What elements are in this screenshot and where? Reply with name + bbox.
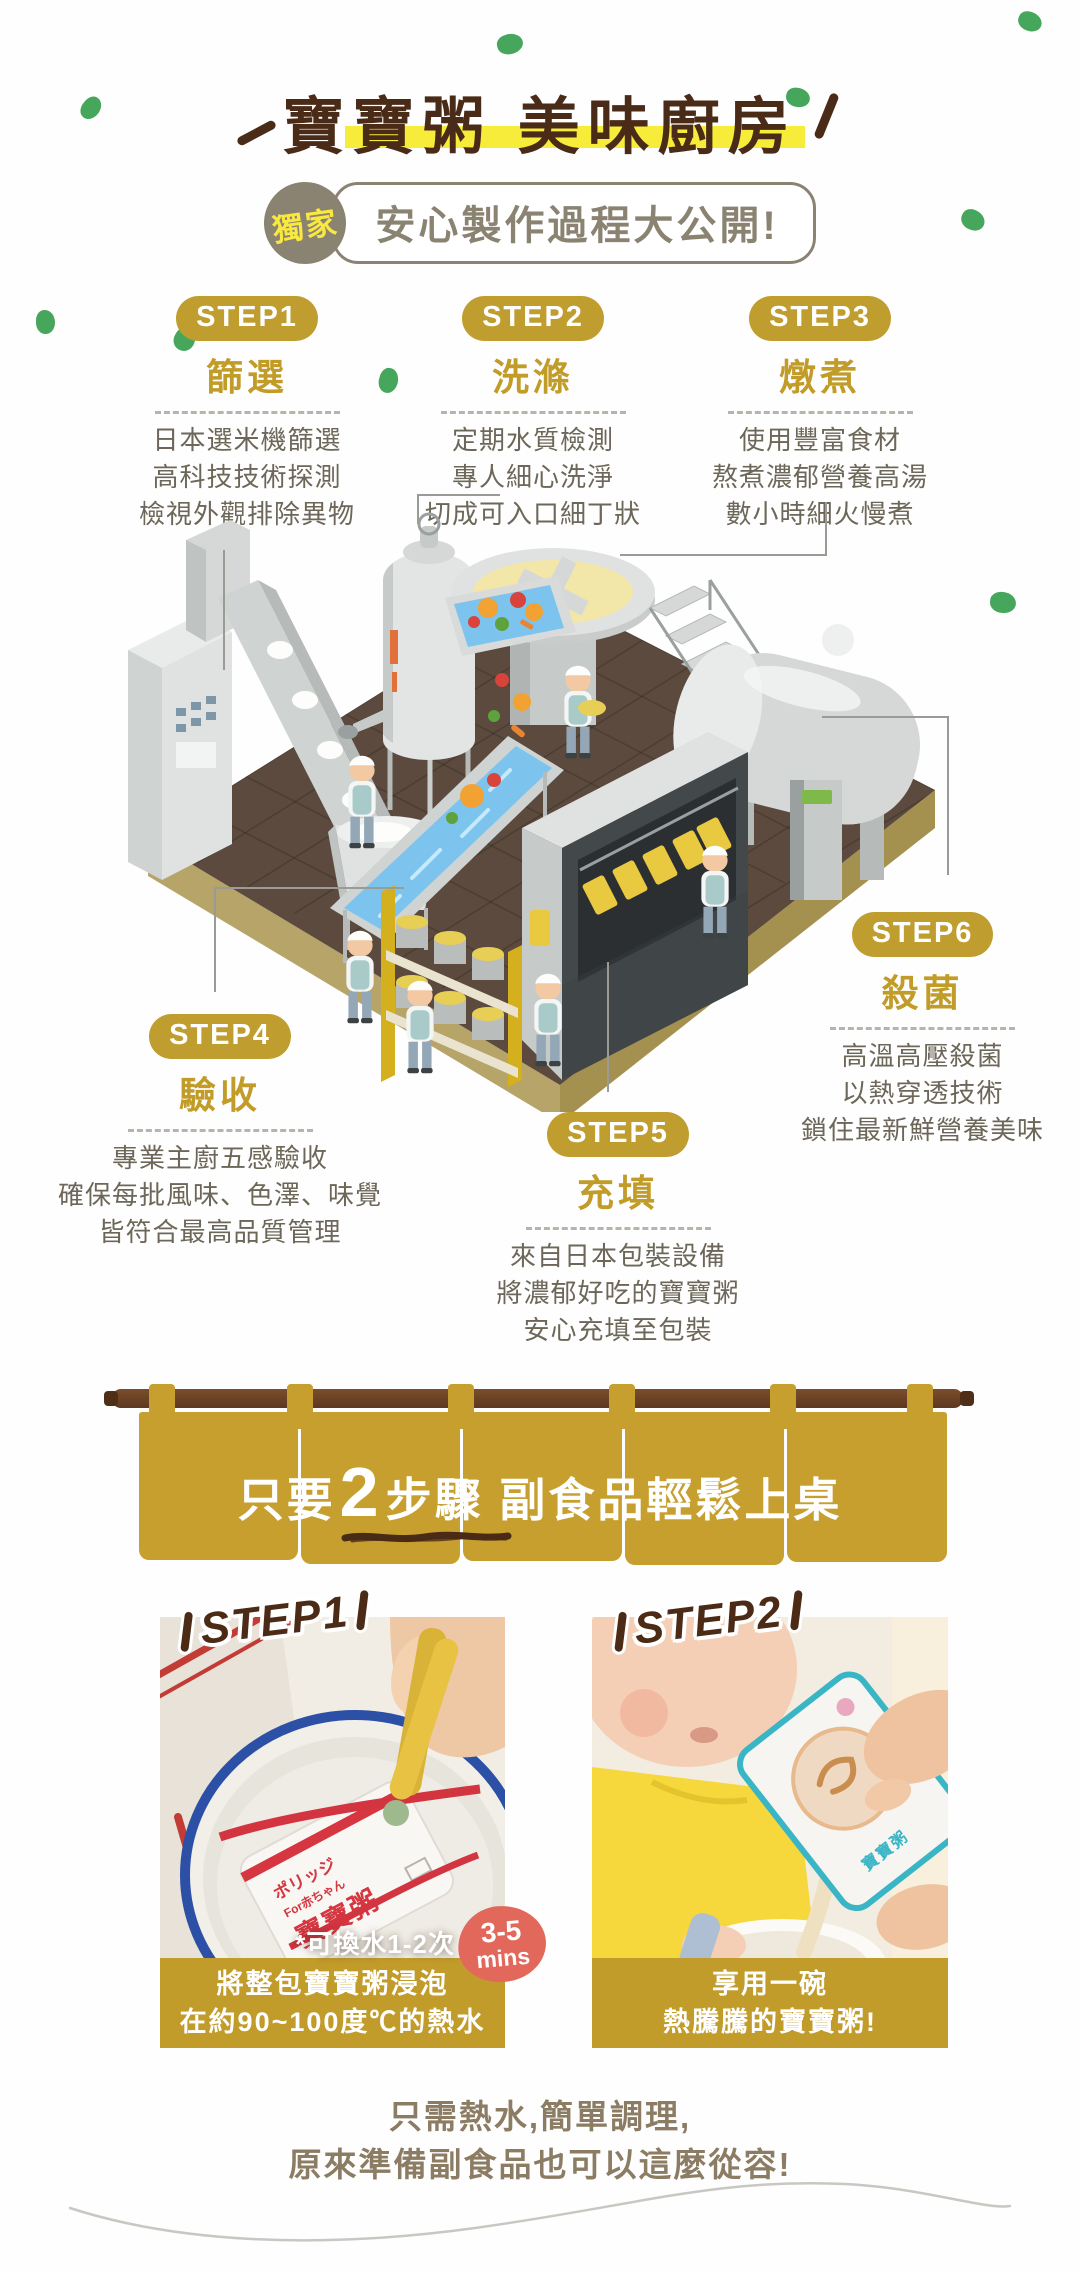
step4-line: 專業主廚五感驗收 [40, 1140, 400, 1177]
noren-pole [112, 1389, 963, 1408]
water-change-note: *可換水1-2次 [265, 1924, 455, 1961]
dashed-divider [155, 411, 340, 414]
step6-line: 以熱穿透技術 [765, 1075, 1080, 1112]
step5-line: 來自日本包裝設備 [438, 1238, 798, 1275]
noren-pole-cap [104, 1391, 118, 1406]
banner-scribble-underline [340, 1528, 515, 1546]
banner-headline: 只要2步驟 副食品輕鬆上桌 [0, 1452, 1080, 1532]
step-block-6: STEP6 殺菌 高溫高壓殺菌 以熱穿透技術 鎖住最新鮮營養美味 [765, 912, 1080, 1149]
header-badge-row: 獨家 安心製作過程大公開! [0, 182, 1080, 264]
banner-mid: 步驟 [386, 1464, 484, 1530]
photo2-caption-line: 享用一碗 [712, 1965, 828, 2003]
confetti-speck [495, 31, 525, 57]
photo2-caption-line: 熱騰騰的寶寶粥! [663, 2003, 877, 2041]
step4-line: 皆符合最高品質管理 [40, 1214, 400, 1251]
step5-line: 將濃郁好吃的寶寶粥 [438, 1275, 798, 1312]
photo1-caption-line: 在約90~100度℃的熱水 [180, 2003, 486, 2041]
photo1-caption: 將整包寶寶粥浸泡 在約90~100度℃的熱水 [160, 1958, 505, 2048]
photo2-caption: 享用一碗 熱騰騰的寶寶粥! [592, 1958, 948, 2048]
step5-line: 安心充填至包裝 [438, 1312, 798, 1349]
step5-title: 充填 [438, 1163, 798, 1217]
step3-line: 使用豐富食材 [650, 422, 990, 459]
step-block-5: STEP5 充填 來自日本包裝設備 將濃郁好吃的寶寶粥 安心充填至包裝 [438, 1112, 798, 1349]
step4-line: 確保每批風味、色澤、味覺 [40, 1177, 400, 1214]
noren-pole-cap [960, 1391, 974, 1406]
page-title: 寶寶粥 美味廚房 [0, 76, 1080, 166]
photo1-caption-line: 將整包寶寶粥浸泡 [217, 1965, 449, 2003]
label-slash [356, 1590, 369, 1631]
step2-badge: STEP2 [462, 296, 604, 341]
label-slash [790, 1590, 803, 1631]
label-slash [180, 1611, 193, 1652]
dashed-divider [830, 1027, 1015, 1030]
banner-pre: 只要 [238, 1464, 336, 1530]
confetti-speck [36, 310, 55, 334]
time-badge-unit: mins [475, 1944, 531, 1972]
footer-wave-divider [55, 2170, 1025, 2260]
footer-line-1: 只需熱水,簡單調理, [0, 2090, 1080, 2138]
step6-badge: STEP6 [852, 912, 994, 957]
dashed-divider [128, 1129, 313, 1132]
label-slash [614, 1611, 627, 1652]
step3-title: 燉煮 [650, 347, 990, 401]
confetti-speck [989, 591, 1017, 614]
step4-badge: STEP4 [149, 1014, 291, 1059]
step6-line: 高溫高壓殺菌 [765, 1038, 1080, 1075]
step5-badge: STEP5 [547, 1112, 689, 1157]
step1-badge: STEP1 [176, 296, 318, 341]
tank-console [790, 780, 842, 900]
dashed-divider [441, 411, 626, 414]
step6-title: 殺菌 [765, 963, 1080, 1017]
banner-number: 2 [336, 1452, 386, 1532]
rice-sorting-machine [128, 520, 250, 880]
dashed-divider [526, 1227, 711, 1230]
confetti-speck [1015, 8, 1044, 34]
infographic-page: 寶寶粥 美味廚房 獨家 安心製作過程大公開! STEP1 篩選 日本選米機篩選 … [0, 0, 1080, 2272]
photo-step2-serving: 寶寶粥 享用一碗 熱騰騰的寶寶粥! [592, 1617, 948, 2048]
step4-title: 驗收 [40, 1065, 400, 1119]
dashed-divider [728, 411, 913, 414]
step6-line: 鎖住最新鮮營養美味 [765, 1112, 1080, 1149]
header-subtitle: 安心製作過程大公開! [332, 182, 815, 264]
banner-rest: 副食品輕鬆上桌 [484, 1464, 843, 1530]
step-block-4: STEP4 驗收 專業主廚五感驗收 確保每批風味、色澤、味覺 皆符合最高品質管理 [40, 1014, 400, 1251]
step3-badge: STEP3 [749, 296, 891, 341]
photo-step1-soaking: ポリッジ For赤ちゃん 寶寶粥 將整包寶寶粥浸泡 在約90~100度℃的熱水 [160, 1617, 505, 2048]
